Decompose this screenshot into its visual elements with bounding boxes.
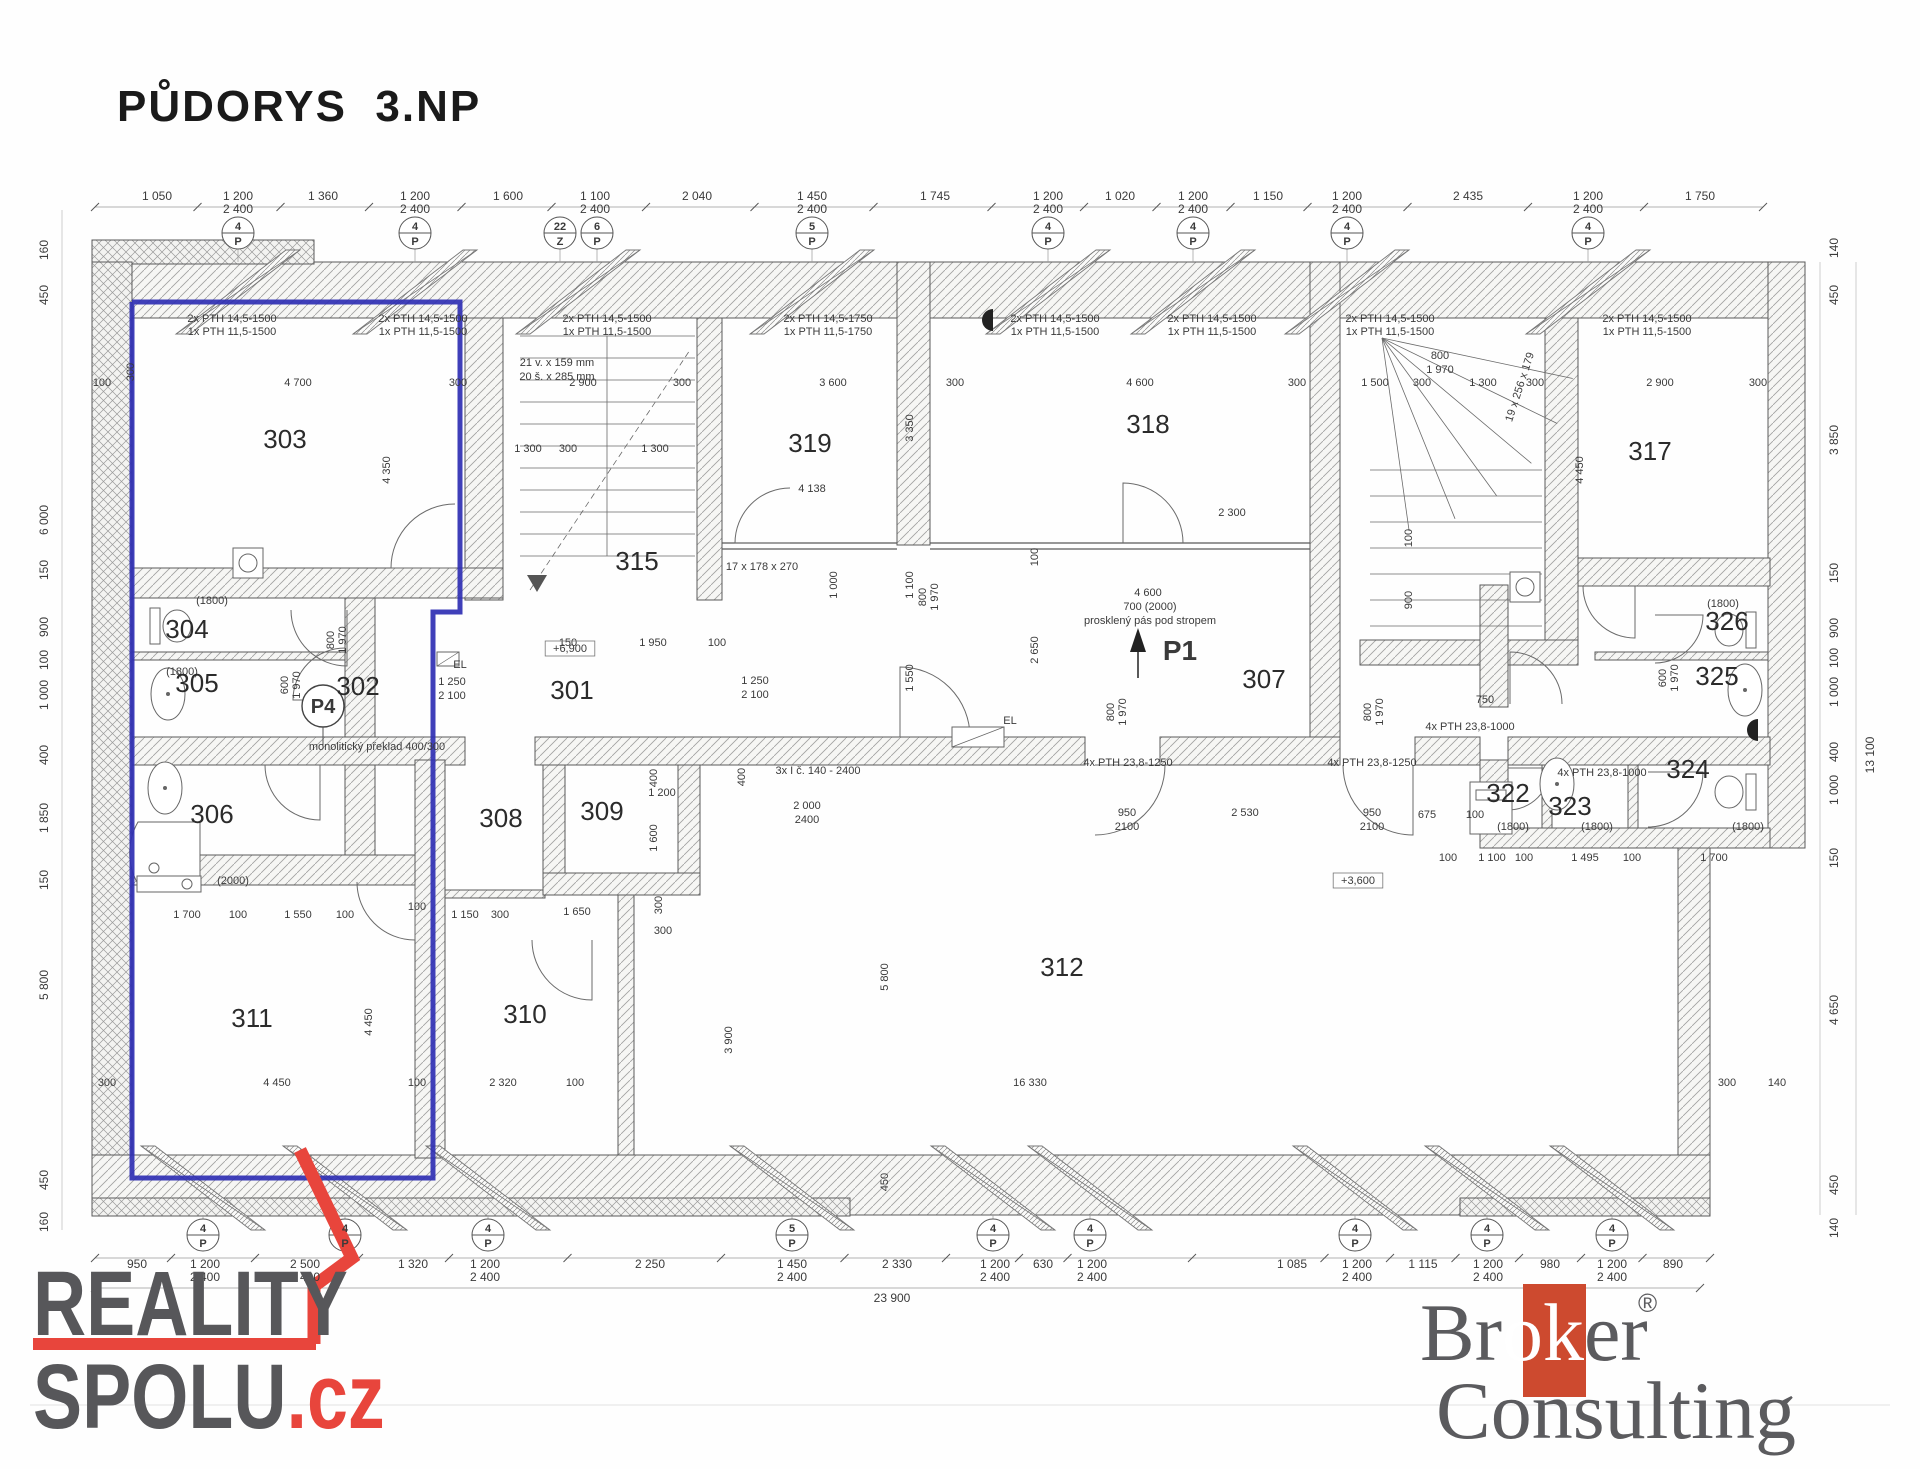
interior-dim-value: 600 bbox=[1657, 669, 1669, 687]
interior-dim-value: 1 970 bbox=[929, 583, 941, 611]
interior-dim-value: 950 bbox=[1118, 807, 1136, 819]
room-label: 312 bbox=[1040, 952, 1083, 982]
top-dim-value: 1 050 bbox=[142, 189, 172, 203]
marker-number: 4 bbox=[1045, 221, 1052, 233]
door-arc bbox=[265, 765, 320, 820]
interior-dim-value: 800 bbox=[1105, 703, 1117, 721]
marker-number: 4 bbox=[1190, 221, 1197, 233]
interior-dim-value: 400 bbox=[736, 768, 748, 786]
marker-letter: P bbox=[1343, 236, 1350, 248]
top-dim-value: 1 200 bbox=[400, 189, 430, 203]
bottom-dim-value: 2 400 bbox=[1597, 1270, 1627, 1284]
entrance-arrow-icon bbox=[1130, 628, 1146, 652]
marker-number: 4 bbox=[1352, 1223, 1359, 1235]
bottom-dim-value: 2 250 bbox=[635, 1257, 665, 1271]
side-dim-value: 100 bbox=[37, 650, 51, 670]
wall-segment bbox=[1545, 318, 1578, 658]
interior-dim-value: 1 700 bbox=[173, 909, 201, 921]
reality-spolu-logo: REALITY SPOLU.cz bbox=[33, 1262, 473, 1439]
interior-dim-value: 800 bbox=[325, 631, 337, 649]
marker-number: 4 bbox=[990, 1223, 997, 1235]
marker-letter: P bbox=[1483, 1238, 1490, 1250]
interior-dim-value: 300 bbox=[1718, 1077, 1736, 1089]
annotation-label: (1800) bbox=[196, 595, 228, 607]
side-dim-value: 1 000 bbox=[37, 680, 51, 710]
marker-number: 22 bbox=[554, 221, 566, 233]
interior-dim-value: 300 bbox=[653, 896, 665, 914]
room-label: 304 bbox=[165, 614, 208, 644]
logo-cz-suffix: .cz bbox=[287, 1346, 385, 1448]
marker-letter: P bbox=[1044, 236, 1051, 248]
interior-dim-value: 4 350 bbox=[381, 456, 393, 484]
side-dim-value: 3 850 bbox=[1827, 425, 1841, 455]
annotation-label: 2x PTH 14,5-1500 bbox=[187, 313, 276, 325]
bottom-dim-value: 1 200 bbox=[1473, 1257, 1503, 1271]
door-arc bbox=[391, 504, 455, 568]
annotation-label: 20 š. x 285 mm bbox=[519, 371, 594, 383]
interior-dim-value: 2100 bbox=[1115, 821, 1139, 833]
annotation-label: (2000) bbox=[217, 875, 249, 887]
bottom-dim-value: 2 330 bbox=[882, 1257, 912, 1271]
side-dim-value: 450 bbox=[1827, 285, 1841, 305]
interior-dim-value: 100 bbox=[93, 377, 111, 389]
marker-letter: P bbox=[341, 1238, 348, 1250]
interior-dim-value: 1 700 bbox=[1700, 852, 1728, 864]
wall-segment bbox=[1768, 262, 1805, 848]
interior-dim-value: 300 bbox=[98, 1077, 116, 1089]
wall-segment bbox=[445, 890, 545, 898]
bottom-dim-value: 2 400 bbox=[470, 1270, 500, 1284]
bottom-dim-value: 1 115 bbox=[1408, 1257, 1437, 1271]
interior-dim-value: 4 600 bbox=[1134, 587, 1162, 599]
interior-dim-value: 300 bbox=[673, 377, 691, 389]
interior-dim-value: 1 970 bbox=[1117, 698, 1129, 726]
top-dim-value: 1 200 bbox=[223, 189, 253, 203]
annotation-label: 17 x 178 x 270 bbox=[726, 561, 798, 573]
interior-dim-value: 300 bbox=[125, 363, 137, 381]
side-dim-value: 160 bbox=[37, 240, 51, 260]
wall-segment bbox=[92, 262, 132, 1215]
interior-dim-value: 950 bbox=[1363, 807, 1381, 819]
interior-dim-value: 100 bbox=[1623, 852, 1641, 864]
side-dim-value: 450 bbox=[1827, 1175, 1841, 1195]
interior-dim-value: 100 bbox=[1439, 852, 1457, 864]
room-label: 305 bbox=[175, 668, 218, 698]
side-dim-value: 160 bbox=[37, 1212, 51, 1232]
room-label: 311 bbox=[231, 1003, 272, 1033]
wall-segment bbox=[897, 262, 930, 545]
annotation-label: 1 250 bbox=[438, 676, 466, 688]
overall-dim-value: 23 900 bbox=[874, 1291, 911, 1305]
wall-segment bbox=[92, 1198, 850, 1216]
annotation-label: 2 100 bbox=[438, 690, 466, 702]
top-dim-value: 1 360 bbox=[308, 189, 338, 203]
bottom-dim-value: 1 200 bbox=[980, 1257, 1010, 1271]
interior-dim-value: 1 950 bbox=[639, 637, 667, 649]
wall-segment bbox=[345, 598, 375, 860]
top-dim-value: 1 200 bbox=[1332, 189, 1362, 203]
room-label: 307 bbox=[1242, 664, 1285, 694]
bottom-dim-value: 2 400 bbox=[1077, 1270, 1107, 1284]
bottom-dim-value: 1 450 bbox=[777, 1257, 807, 1271]
interior-dim-value: 300 bbox=[1288, 377, 1306, 389]
bottom-dim-value: 1 200 bbox=[1597, 1257, 1627, 1271]
top-dim-value: 1 745 bbox=[920, 189, 950, 203]
marker-letter: P bbox=[989, 1238, 996, 1250]
bottom-dim-value: 980 bbox=[1540, 1257, 1560, 1271]
marker-letter: P bbox=[199, 1238, 206, 1250]
annotation-label: +3,600 bbox=[1341, 875, 1375, 887]
wall-segment bbox=[1480, 585, 1508, 707]
room-label: 306 bbox=[190, 799, 233, 829]
basin-icon bbox=[1743, 688, 1747, 692]
side-dim-value: 450 bbox=[37, 1170, 51, 1190]
room-label: 326 bbox=[1705, 606, 1748, 636]
interior-dim-value: 300 bbox=[1749, 377, 1767, 389]
interior-dim-value: 2 300 bbox=[1218, 507, 1246, 519]
broker-consulting-logo: Broker® Consulting bbox=[1420, 1292, 1796, 1452]
wall-segment bbox=[1508, 737, 1770, 765]
marker-number: 4 bbox=[235, 221, 242, 233]
interior-dim-value: 1 000 bbox=[828, 571, 840, 599]
side-dim-value: 140 bbox=[1827, 238, 1841, 258]
interior-dim-value: 2400 bbox=[795, 814, 819, 826]
interior-dim-value: 1 550 bbox=[904, 664, 916, 692]
annotation-label: 2x PTH 14,5-1500 bbox=[1010, 313, 1099, 325]
annotation-label: 1x PTH 11,5-1500 bbox=[1603, 326, 1691, 338]
top-dim-value: 1 200 bbox=[1573, 189, 1603, 203]
annotation-label: 700 (2000) bbox=[1123, 601, 1176, 613]
interior-dim-value: 300 bbox=[1413, 377, 1431, 389]
top-dim-value: 1 750 bbox=[1685, 189, 1715, 203]
top-dim-value: 1 100 bbox=[580, 189, 610, 203]
top-dim-value: 2 040 bbox=[682, 189, 712, 203]
interior-dim-value: 2 650 bbox=[1029, 636, 1041, 664]
room-label: 303 bbox=[263, 424, 306, 454]
stair-tread bbox=[1382, 338, 1409, 531]
interior-dim-value: 1 970 bbox=[1426, 364, 1454, 376]
interior-dim-value: 100 bbox=[1515, 852, 1533, 864]
interior-dim-value: 800 bbox=[1362, 703, 1374, 721]
interior-dim-value: 4 138 bbox=[798, 483, 826, 495]
interior-dim-value: 1 200 bbox=[648, 787, 676, 799]
interior-dim-value: 3 600 bbox=[819, 377, 847, 389]
annotation-label: 1x PTH 11,5-1750 bbox=[784, 326, 872, 338]
interior-dim-value: 100 bbox=[1466, 809, 1484, 821]
annotation-label: EL bbox=[1003, 715, 1016, 727]
interior-dim-value: 100 bbox=[336, 909, 354, 921]
top-dim-value: 2 400 bbox=[223, 202, 253, 216]
interior-dim-value: 1 970 bbox=[337, 626, 349, 654]
annotation-label: (1800) bbox=[1497, 821, 1529, 833]
interior-dim-value: 800 bbox=[917, 588, 929, 606]
p4-label: P4 bbox=[311, 696, 336, 718]
room-label: 318 bbox=[1126, 409, 1169, 439]
interior-dim-value: 100 bbox=[408, 901, 426, 913]
room-label: 301 bbox=[550, 675, 593, 705]
room-label: 319 bbox=[788, 428, 831, 458]
annotation-label: 2x PTH 14,5-1750 bbox=[783, 313, 872, 325]
side-dim-value: 1 000 bbox=[1827, 775, 1841, 805]
wall-segment bbox=[1415, 737, 1480, 765]
top-dim-value: 2 435 bbox=[1453, 189, 1483, 203]
logo-reality-text: REALITY bbox=[33, 1262, 385, 1347]
annotation-label: 4x PTH 23,8-1000 bbox=[1557, 767, 1646, 779]
marker-letter: P bbox=[1086, 1238, 1093, 1250]
basin-icon bbox=[166, 692, 170, 696]
annotation-label: 1x PTH 11,5-1500 bbox=[1346, 326, 1434, 338]
wall-segment bbox=[132, 568, 503, 598]
wall-segment bbox=[1578, 558, 1770, 586]
annotation-label: EL bbox=[453, 659, 466, 671]
side-dim-value: 1 850 bbox=[37, 803, 51, 833]
wall-segment bbox=[1310, 262, 1340, 739]
annotation-label: 21 v. x 159 mm bbox=[520, 357, 594, 369]
marker-letter: P bbox=[1189, 236, 1196, 248]
interior-dim-value: 2100 bbox=[1360, 821, 1384, 833]
marker-letter: P bbox=[808, 236, 815, 248]
sink-icon bbox=[233, 548, 263, 578]
room-label: 323 bbox=[1548, 791, 1591, 821]
marker-letter: P bbox=[411, 236, 418, 248]
marker-number: 4 bbox=[1585, 221, 1592, 233]
registered-mark: ® bbox=[1638, 1290, 1657, 1316]
side-dim-value: 400 bbox=[1827, 742, 1841, 762]
interior-dim-value: 16 330 bbox=[1013, 1077, 1047, 1089]
door-arc bbox=[735, 488, 790, 543]
annotation-label: 1x PTH 11,5-1500 bbox=[379, 326, 467, 338]
wall-segment bbox=[1160, 737, 1340, 765]
side-dim-value: 900 bbox=[37, 617, 51, 637]
interior-dim-value: 300 bbox=[449, 377, 467, 389]
interior-dim-value: 1 600 bbox=[648, 824, 660, 852]
marker-letter: P bbox=[484, 1238, 491, 1250]
wall-segment bbox=[1595, 652, 1768, 660]
drawing-title: PŮDORYS 3.NP bbox=[117, 82, 481, 132]
interior-dim-value: 600 bbox=[279, 676, 291, 694]
marker-letter: P bbox=[1584, 236, 1591, 248]
side-dim-value: 150 bbox=[1827, 848, 1841, 868]
wall-segment bbox=[465, 318, 503, 600]
logo-consulting-text: Consulting bbox=[1436, 1370, 1796, 1452]
marker-letter: P bbox=[788, 1238, 795, 1250]
marker-number: 4 bbox=[200, 1223, 207, 1235]
annotation-label: 1x PTH 11,5-1500 bbox=[1011, 326, 1099, 338]
interior-dim-value: 100 bbox=[1029, 548, 1041, 566]
interior-dim-value: 1 100 bbox=[904, 571, 916, 599]
marker-letter: P bbox=[593, 236, 600, 248]
side-dim-value: 150 bbox=[1827, 563, 1841, 583]
room-label: 325 bbox=[1695, 661, 1738, 691]
top-dim-value: 1 150 bbox=[1253, 189, 1283, 203]
interior-dim-value: 1 100 bbox=[1478, 852, 1506, 864]
marker-number: 4 bbox=[1087, 1223, 1094, 1235]
annotation-label: 2x PTH 14,5-1500 bbox=[1345, 313, 1434, 325]
interior-dim-value: 4 600 bbox=[1126, 377, 1154, 389]
interior-dim-value: 1 970 bbox=[291, 671, 303, 699]
side-dim-value: 150 bbox=[37, 560, 51, 580]
top-dim-value: 1 600 bbox=[493, 189, 523, 203]
interior-dim-value: 1 150 bbox=[451, 909, 479, 921]
interior-dim-value: 300 bbox=[946, 377, 964, 389]
floor-plan-canvas: 1 0501 2002 4001 3601 2002 4001 6001 100… bbox=[0, 0, 1920, 1469]
annotation-label: monolitický překlad 400/300 bbox=[309, 741, 445, 753]
door-arc bbox=[1123, 483, 1183, 543]
top-dim-value: 1 020 bbox=[1105, 189, 1135, 203]
toilet-icon bbox=[1715, 776, 1743, 808]
interior-dim-value: 300 bbox=[559, 443, 577, 455]
annotation-label: +6,900 bbox=[553, 643, 587, 655]
top-dim-value: 1 450 bbox=[797, 189, 827, 203]
side-dim-value: 13 100 bbox=[1863, 736, 1877, 773]
bottom-dim-value: 1 085 bbox=[1277, 1257, 1307, 1271]
sink-icon bbox=[1510, 572, 1540, 602]
side-dim-value: 450 bbox=[37, 285, 51, 305]
interior-dim-value: 900 bbox=[1403, 591, 1415, 609]
wall-segment bbox=[697, 318, 722, 600]
bottom-dim-value: 890 bbox=[1663, 1257, 1683, 1271]
interior-dim-value: 2 320 bbox=[489, 1077, 517, 1089]
annotation-label: 4x PTH 23,8-1250 bbox=[1083, 757, 1172, 769]
marker-number: 6 bbox=[594, 221, 600, 233]
interior-dim-value: 4 450 bbox=[1574, 456, 1586, 484]
logo-broker-text: Broker® bbox=[1420, 1292, 1796, 1374]
basin-icon bbox=[163, 786, 167, 790]
interior-dim-value: 450 bbox=[879, 1173, 891, 1191]
interior-dim-value: 4 450 bbox=[263, 1077, 291, 1089]
annotation-label: 2x PTH 14,5-1500 bbox=[562, 313, 651, 325]
wall-segment bbox=[543, 873, 700, 895]
interior-dim-value: 1 970 bbox=[1669, 664, 1681, 692]
marker-number: 4 bbox=[1484, 1223, 1491, 1235]
marker-number: 4 bbox=[342, 1223, 349, 1235]
interior-dim-value: 1 495 bbox=[1571, 852, 1599, 864]
interior-dim-value: 1 300 bbox=[641, 443, 669, 455]
bottom-dim-value: 2 400 bbox=[1342, 1270, 1372, 1284]
interior-dim-value: 675 bbox=[1418, 809, 1436, 821]
marker-letter: P bbox=[1351, 1238, 1358, 1250]
annotation-label: 1x PTH 11,5-1500 bbox=[563, 326, 651, 338]
marker-number: 4 bbox=[1609, 1223, 1616, 1235]
annotation-label: 2x PTH 14,5-1500 bbox=[1167, 313, 1256, 325]
wall-segment bbox=[618, 895, 634, 1155]
top-dim-value: 1 200 bbox=[1178, 189, 1208, 203]
shower-icon bbox=[130, 822, 200, 884]
room-label: 324 bbox=[1666, 754, 1709, 784]
kitchen-counter bbox=[137, 876, 201, 892]
annotation-label: (1800) bbox=[1581, 821, 1613, 833]
marker-number: 4 bbox=[412, 221, 419, 233]
top-dim-value: 2 400 bbox=[1033, 202, 1063, 216]
wall-segment bbox=[1360, 640, 1578, 665]
interior-dim-value: 1 300 bbox=[514, 443, 542, 455]
interior-dim-value: 2 530 bbox=[1231, 807, 1259, 819]
room-label: 322 bbox=[1486, 778, 1529, 808]
room-label: 308 bbox=[479, 803, 522, 833]
interior-dim-value: 3 350 bbox=[904, 414, 916, 442]
interior-dim-value: 800 bbox=[1431, 350, 1449, 362]
annotation-label: 2x PTH 14,5-1500 bbox=[1602, 313, 1691, 325]
annotation-label: 4x PTH 23,8-1000 bbox=[1425, 721, 1514, 733]
side-dim-value: 140 bbox=[1827, 1218, 1841, 1238]
toilet-icon bbox=[1746, 774, 1756, 810]
bottom-dim-value: 630 bbox=[1033, 1257, 1053, 1271]
side-dim-value: 5 800 bbox=[37, 970, 51, 1000]
interior-dim-value: 1 970 bbox=[1374, 698, 1386, 726]
interior-dim-value: 300 bbox=[491, 909, 509, 921]
annotation-label: 2x PTH 14,5-1500 bbox=[378, 313, 467, 325]
interior-dim-value: 4 700 bbox=[284, 377, 312, 389]
interior-dim-value: 100 bbox=[708, 637, 726, 649]
top-dim-value: 1 200 bbox=[1033, 189, 1063, 203]
interior-dim-value: 3 900 bbox=[723, 1026, 735, 1054]
marker-letter: P bbox=[234, 236, 241, 248]
marker-number: 5 bbox=[789, 1223, 795, 1235]
top-dim-value: 2 400 bbox=[1332, 202, 1362, 216]
annotation-label: prosklený pás pod stropem bbox=[1084, 615, 1216, 627]
bottom-dim-value: 2 400 bbox=[980, 1270, 1010, 1284]
marker-number: 5 bbox=[809, 221, 815, 233]
room-label: 317 bbox=[1628, 436, 1671, 466]
side-dim-value: 1 000 bbox=[1827, 677, 1841, 707]
interior-dim-value: 100 bbox=[229, 909, 247, 921]
bottom-dim-value: 1 200 bbox=[1077, 1257, 1107, 1271]
interior-dim-value: 300 bbox=[654, 925, 672, 937]
p1-label: P1 bbox=[1163, 635, 1197, 666]
marker-letter: P bbox=[1608, 1238, 1615, 1250]
interior-dim-value: 1 550 bbox=[284, 909, 312, 921]
wall-segment bbox=[415, 760, 445, 1158]
top-dim-value: 2 400 bbox=[1178, 202, 1208, 216]
drawing-sheet: 1 0501 2002 4001 3601 2002 4001 6001 100… bbox=[0, 0, 1920, 1469]
basin-icon bbox=[1555, 782, 1559, 786]
room-label: 310 bbox=[503, 999, 546, 1029]
top-dim-value: 2 400 bbox=[797, 202, 827, 216]
bottom-dim-value: 2 400 bbox=[1473, 1270, 1503, 1284]
bottom-dim-value: 1 200 bbox=[470, 1257, 500, 1271]
interior-dim-value: 2 000 bbox=[793, 800, 821, 812]
interior-dim-value: 4 450 bbox=[363, 1008, 375, 1036]
logo-spolu-text: SPOLU.cz bbox=[33, 1355, 385, 1440]
annotation-label: 2 100 bbox=[741, 689, 769, 701]
interior-dim-value: 400 bbox=[648, 769, 660, 787]
annotation-label: 1x PTH 11,5-1500 bbox=[1168, 326, 1256, 338]
marker-number: 4 bbox=[1344, 221, 1351, 233]
interior-dim-value: 1 650 bbox=[563, 906, 591, 918]
toilet-icon bbox=[150, 608, 160, 644]
marker-number: 4 bbox=[485, 1223, 492, 1235]
stair-tread bbox=[1382, 338, 1573, 379]
door-arc bbox=[357, 882, 415, 940]
bottom-dim-value: 2 400 bbox=[777, 1270, 807, 1284]
door-arc bbox=[1583, 586, 1635, 638]
interior-dim-value: 5 800 bbox=[879, 963, 891, 991]
door-arc bbox=[532, 940, 592, 1000]
interior-dim-value: 1 300 bbox=[1469, 377, 1497, 389]
annotation-label: 3x I č. 140 - 2400 bbox=[776, 765, 861, 777]
side-dim-value: 400 bbox=[37, 745, 51, 765]
top-dim-value: 2 400 bbox=[1573, 202, 1603, 216]
interior-dim-value: 2 900 bbox=[1646, 377, 1674, 389]
room-label: 309 bbox=[580, 796, 623, 826]
annotation-label: 750 bbox=[1476, 694, 1494, 706]
annotation-label: 4x PTH 23,8-1250 bbox=[1327, 757, 1416, 769]
room-label: 315 bbox=[615, 546, 658, 576]
side-dim-value: 100 bbox=[1827, 648, 1841, 668]
top-dim-value: 2 400 bbox=[580, 202, 610, 216]
annotation-label: 1 250 bbox=[741, 675, 769, 687]
side-dim-value: 4 650 bbox=[1827, 995, 1841, 1025]
